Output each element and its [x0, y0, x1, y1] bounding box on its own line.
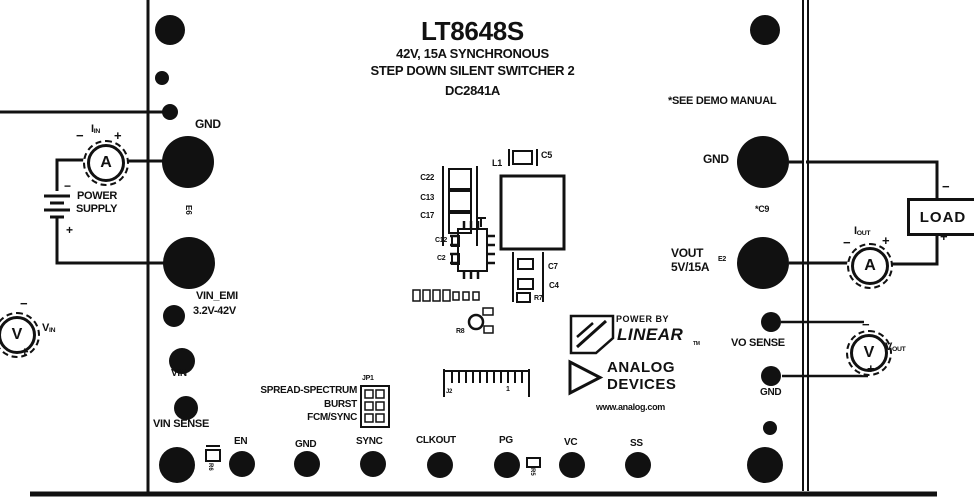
label-c13: C13: [420, 194, 434, 202]
jumper-option-burst: BURST: [324, 400, 357, 410]
connection-diagram: LT8648S 42V, 15A SYNCHRONOUS STEP DOWN S…: [0, 0, 974, 500]
battery-symbol: [44, 196, 70, 217]
resistor-r6-body: [206, 446, 220, 461]
ammeter-iin: A: [83, 140, 129, 186]
junction-dot-left: [162, 104, 178, 120]
resistor-r5-body: [527, 458, 540, 467]
board-subtitle-2: STEP DOWN SILENT SWITCHER 2: [300, 64, 645, 77]
label-c12: C12: [435, 237, 447, 244]
label-r8: R8: [456, 328, 464, 335]
wire-gnd-to-load: [806, 162, 937, 198]
adi-url: www.analog.com: [596, 403, 665, 412]
jumper-option-fcm-sync: FCM/SYNC: [307, 413, 357, 423]
label-pin-clkout: CLKOUT: [416, 436, 456, 446]
pad-vout: [737, 237, 789, 289]
adi-wordmark-devices: DEVICES: [607, 377, 676, 392]
supply-minus-sign: −: [64, 180, 71, 192]
ic-u1: [450, 218, 495, 279]
label-pin-sync: SYNC: [356, 437, 383, 447]
label-c22: C22: [420, 174, 434, 182]
pad-bottom-right: [747, 447, 783, 483]
load-minus-sign: −: [942, 180, 949, 193]
label-c4: C4: [549, 282, 559, 290]
pad-vin-emi: [163, 237, 215, 289]
vin-plus-sign: +: [21, 345, 28, 358]
label-e6: E6: [184, 205, 192, 215]
jumper-option-spread-spectrum: SPREAD-SPECTRUM: [260, 386, 357, 396]
label-vout: VOUT: [671, 247, 703, 259]
label-vin-sense: VIN SENSE: [153, 419, 209, 430]
mount-hole-top-right: [750, 15, 780, 45]
board-number: DC2841A: [300, 84, 645, 97]
jumper-jp1-block: [361, 386, 389, 427]
label-powered-by: POWER BY: [616, 315, 669, 324]
pad-gnd-right: [737, 136, 789, 188]
label-pin-vc: VC: [564, 438, 577, 448]
label-e2: E2: [718, 256, 726, 263]
pad-sync: [360, 451, 386, 477]
label-vin-range: 3.2V-42V: [193, 306, 236, 317]
pad-ss: [625, 452, 651, 478]
iin-plus-sign: +: [114, 129, 121, 142]
label-l1: L1: [492, 159, 502, 168]
ammeter-iin-symbol: A: [87, 144, 125, 182]
pad-vc: [559, 452, 585, 478]
label-pin-ss: SS: [630, 439, 643, 449]
label-c17: C17: [420, 212, 434, 220]
pad-vin-sense: [174, 396, 198, 420]
label-c2: C2: [437, 255, 445, 262]
pad-bottom-left: [159, 447, 195, 483]
label-j2: J2: [446, 389, 452, 395]
label-vin-emi: VIN_EMI: [196, 291, 238, 302]
demo-manual-note: *SEE DEMO MANUAL: [668, 96, 776, 107]
vout-minus-sign: −: [862, 318, 869, 331]
input-cap-bank: [443, 166, 477, 246]
pad-en: [229, 451, 255, 477]
label-c7: C7: [548, 263, 558, 271]
label-vo-sense: VO SENSE: [731, 338, 785, 349]
pad-gnd-left: [162, 136, 214, 188]
iin-minus-sign: −: [76, 129, 83, 142]
voltmeter-vin-symbol: V: [0, 316, 36, 354]
component-r8-body: [469, 315, 483, 329]
lt-logo: [571, 316, 613, 353]
adi-wordmark-analog: ANALOG: [607, 360, 675, 375]
ammeter-iout: A: [847, 243, 893, 289]
pad-gnd-sense: [761, 366, 781, 386]
label-jp1: JP1: [362, 375, 374, 382]
small-dot-bottom-right: [763, 421, 777, 435]
adi-logo-triangle: [570, 362, 600, 393]
label-r5: R5: [529, 468, 535, 476]
label-gnd-left: GND: [195, 118, 221, 130]
vin-minus-sign: −: [20, 297, 27, 310]
vout-plus-sign: +: [867, 362, 874, 375]
label-iin: IIN: [91, 124, 100, 136]
linear-wordmark: LINEAR: [617, 326, 683, 343]
label-vout-rating: 5V/15A: [671, 261, 709, 273]
label-gnd-sense: GND: [760, 388, 781, 398]
pad-gnd-bottom: [294, 451, 320, 477]
label-iout: IOUT: [854, 226, 870, 238]
small-dot-top-left: [155, 71, 169, 85]
iout-plus-sign: +: [882, 234, 889, 247]
label-vin: VIN: [171, 369, 187, 379]
supply-plus-sign: +: [66, 224, 73, 236]
label-r7: R7: [534, 295, 542, 302]
label-tm: TM: [693, 342, 700, 347]
pad-clkout: [427, 452, 453, 478]
load-label: LOAD: [920, 209, 967, 226]
label-c9: *C9: [755, 205, 769, 214]
cap-c5-part: [509, 149, 537, 166]
label-gnd-right: GND: [703, 153, 729, 165]
label-pin-gnd: GND: [295, 440, 316, 450]
label-power-supply-2: SUPPLY: [76, 204, 117, 215]
pad-small-left: [163, 305, 185, 327]
iout-minus-sign: −: [843, 236, 850, 249]
label-c5: C5: [541, 151, 552, 160]
label-vin-meter: VIN: [42, 323, 55, 335]
label-r6: R6: [207, 463, 213, 471]
mount-hole-top-left: [155, 15, 185, 45]
inductor-l1: [501, 176, 564, 249]
label-power-supply-1: POWER: [77, 191, 117, 202]
label-j2-pin1: 1: [506, 386, 510, 393]
label-pin-pg: PG: [499, 436, 513, 446]
ammeter-iout-symbol: A: [851, 247, 889, 285]
load-plus-sign: +: [940, 230, 947, 243]
pad-vo-sense: [761, 312, 781, 332]
pad-pg: [494, 452, 520, 478]
header-j2-comb: [444, 369, 529, 397]
label-pin-en: EN: [234, 437, 247, 447]
label-vout-meter: VOUT: [885, 342, 906, 354]
board-title: LT8648S: [300, 18, 645, 44]
board-subtitle-1: 42V, 15A SYNCHRONOUS: [300, 47, 645, 60]
